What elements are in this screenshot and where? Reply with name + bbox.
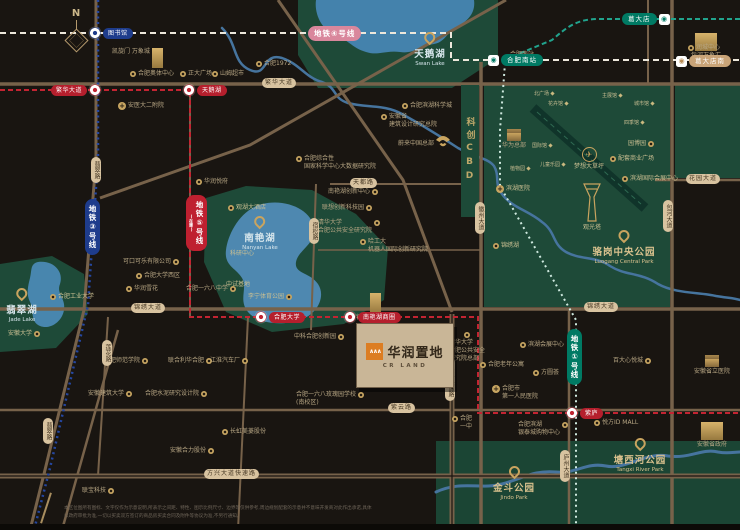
poi-dot-icon: [108, 488, 114, 494]
poi-label: 观湖大酒店: [228, 204, 266, 212]
poi-dot-icon: [142, 358, 148, 364]
poi-label-text: 滨湖会展中心: [528, 341, 564, 349]
hefei-location-map: 科创CBD ∧∧∧ 华润置地 CR LAND N 本区位图所有图标、文字仅作为示…: [0, 0, 740, 530]
area-name: 塘西河公园Tangxi River Park: [614, 436, 667, 473]
poi-dot-icon: [402, 103, 408, 109]
poi-label-text: 长虹美菱股份: [230, 428, 266, 436]
area-name: 金斗公园Jindo Park: [493, 464, 535, 501]
area-name-en: Tangxi River Park: [614, 467, 667, 474]
building-icon: [705, 355, 719, 367]
compass-n-label: N: [58, 8, 94, 19]
area-name-en: Jade Lake: [6, 317, 38, 324]
poi-label-text: 合肥1972: [264, 60, 291, 68]
poi-label: 联宝科技: [82, 487, 114, 495]
poi-label: 合肥一六八中学: [186, 285, 236, 293]
poi-label: 华润悦府: [196, 178, 228, 186]
poi-label: 华为总部: [502, 129, 526, 150]
poi-label: 安徽合力股份: [170, 447, 214, 455]
metro-station-name: 葛大店南: [689, 55, 731, 67]
area-name-en: Swan Lake: [414, 61, 446, 68]
poi-dot-icon: [180, 71, 186, 77]
poi-label: 合肥奥体中心: [130, 70, 174, 78]
poi-label-text: 锦绣湖: [501, 242, 519, 250]
project-row: ∧∧∧ 华润置地: [366, 342, 443, 361]
poi-label-text: 百大心悦城: [613, 357, 643, 365]
road-label: 宿松路: [309, 218, 319, 244]
metro-station: ◉葛大店南: [676, 55, 731, 67]
poi-label: 华润雪花: [126, 285, 158, 293]
cr-land-logo-icon: ∧∧∧: [366, 343, 383, 360]
building-icon: [369, 293, 380, 313]
poi-label-text: 清华大学合肥公共安全研究院: [318, 219, 372, 235]
poi-label-text: 正大广场: [188, 70, 212, 78]
poi-label-text: 滨湖医院: [506, 185, 530, 193]
poi-label: 合肥老年公寓: [480, 361, 524, 369]
poi-label: 合肥大学西区: [136, 272, 180, 280]
building-icon: [507, 129, 521, 141]
poi-label: 联想创新科技园: [322, 204, 372, 212]
metro-station-name: 葛大店: [622, 13, 657, 25]
park-feature-label: 主展馆: [602, 92, 622, 99]
poi-label-text: 合肥一中: [460, 415, 472, 431]
poi-dot-icon: [374, 220, 380, 226]
road-label: 方兴大道快速路: [204, 469, 259, 479]
poi-label: 江淮汽车厂: [210, 357, 248, 365]
metro-station-icon: [184, 85, 195, 96]
poi-label-text: 合肥市第一人民医院: [502, 385, 538, 401]
poi-label-text: 观光塔: [583, 224, 601, 232]
poi-dot-icon: [296, 156, 302, 162]
road-label: 庐州大道: [560, 450, 570, 482]
poi-label-text: 合肥滨湖银泰城购物中心: [518, 421, 560, 437]
bottom-border-bar: [0, 524, 740, 530]
poi-dot-icon: [230, 286, 236, 292]
road-label: 莲花路: [102, 340, 112, 366]
poi-dot-icon: [256, 61, 262, 67]
metro-station-icon: [256, 312, 267, 323]
poi-label: 正大广场: [180, 70, 212, 78]
metro-line-label: 地铁①号线: [567, 329, 582, 385]
park-feature-label: 北广场: [534, 90, 554, 97]
poi-label-text: 合肥大学西区: [144, 272, 180, 280]
poi-label: 南艳湖创新中心: [328, 188, 378, 196]
poi-label-text: 园博园: [628, 140, 646, 148]
poi-dot-icon: [50, 294, 56, 300]
feature-diamond-icon: [640, 120, 644, 124]
metro-station-icon: [90, 85, 101, 96]
poi-label-text: 联宝科技: [82, 487, 106, 495]
poi-label: 配套商业广场: [610, 155, 654, 163]
metro-station-icon: [345, 312, 356, 323]
metro-station-name: 合肥大学: [269, 312, 305, 323]
poi-label-text: 中科合肥创新园: [294, 333, 336, 341]
metro-station-icon: [567, 408, 578, 419]
poi-label-text: 蔚来中国总部: [398, 140, 434, 148]
poi-label-text: 配套商业广场: [618, 155, 654, 163]
poi-dot-icon: [358, 392, 364, 398]
poi-dot-icon: [212, 71, 218, 77]
poi-dot-icon: [366, 205, 372, 211]
poi-label-text: 观湖大酒店: [236, 204, 266, 212]
poi-dot-icon: [594, 420, 600, 426]
poi-label-text: 华润悦府: [204, 178, 228, 186]
poi-label-text: 科研中心: [230, 250, 254, 258]
metro-line-label: 地铁③号线: [85, 199, 100, 255]
map-pin-icon: [422, 30, 438, 46]
luogang-park-east: [675, 85, 740, 178]
park-feature-label: 城市馆: [634, 100, 654, 107]
poi-label: 科研中心: [230, 250, 254, 258]
metro-station-name: 图书馆: [103, 28, 133, 39]
poi-label-text: 合肥一六八玫瑰园学校(南校区): [296, 391, 356, 407]
poi-label: 山姆超市: [212, 70, 244, 78]
road-label: 锦绣大道: [131, 303, 165, 313]
metro-station: ◉合肥南站: [488, 54, 543, 66]
poi-label-text: 山姆超市: [220, 70, 244, 78]
poi-label: 凯旋门 万象城: [112, 48, 163, 68]
poi-dot-icon: [533, 370, 539, 376]
feature-diamond-icon: [526, 166, 530, 170]
poi-label: 安徽省建筑设计研究总院: [381, 113, 437, 129]
road-label: 包河大道: [663, 200, 673, 232]
poi-label-text: 润城中心: [696, 44, 720, 52]
poi-label-text: 合肥工业大学: [58, 293, 94, 301]
poi-dot-icon: [338, 334, 344, 340]
poi-label: 安徽省政府: [697, 422, 727, 449]
poi-label-text: 安医大二附院: [128, 102, 164, 110]
metro-station-icon: ◉: [659, 14, 670, 25]
park-feature-label: 儿童乐园: [540, 161, 565, 168]
poi-label-text: 联想创新科技园: [322, 204, 364, 212]
poi-dot-icon: [452, 416, 458, 422]
road-label: 锦绣大道: [584, 302, 618, 312]
map-pin-icon: [14, 286, 30, 302]
feature-diamond-icon: [561, 162, 565, 166]
poi-label: 悦方ID MALL: [594, 419, 638, 427]
poi-label: +安医大二附院: [118, 102, 164, 110]
poi-label: 锦绣湖: [493, 242, 519, 250]
poi-label: +滨湖医院: [496, 185, 530, 193]
poi-label: 联合利华合肥: [168, 357, 212, 365]
poi-label: ✈梦想大草坪: [574, 147, 604, 171]
poi-label: 合肥一六八玫瑰园学校(南校区): [296, 391, 364, 407]
poi-dot-icon: [201, 391, 207, 397]
poi-label: 蔚来中国总部: [398, 140, 434, 148]
road-label: 紫云路: [388, 403, 415, 413]
disclaimer-line-2: 以政府审批为准,一切以买卖双方签订的商品房买卖合同及附件等协议为准,不另行通知。: [64, 513, 384, 521]
park-feature-label: 四季馆: [624, 119, 644, 126]
poi-label-text: 安徽省政府: [697, 441, 727, 449]
poi-label-text: 华为总部: [502, 142, 526, 150]
disclaimer-line-1: 本区位图所有图标、文字仅作为示意说明,所表示之间距、特性、图示比例尺寸、边界等仅…: [64, 505, 384, 513]
poi-dot-icon: [372, 189, 378, 195]
poi-label: 可口可乐有限公司: [123, 258, 179, 266]
metro-line-label: 地铁④号线: [308, 26, 361, 41]
area-name-en: Jindo Park: [493, 495, 535, 502]
metro-station-icon: [90, 28, 101, 39]
poi-label: 合肥水泥研究设计院: [145, 390, 207, 398]
airplane-icon: ✈: [581, 147, 596, 162]
poi-label: 方圆荟: [533, 369, 559, 377]
map-pin-icon: [616, 228, 632, 244]
poi-label: 滨湖会展中心: [520, 341, 564, 349]
poi-dot-icon: [360, 239, 366, 245]
metro-station-icon: ◉: [488, 55, 499, 66]
poi-label-text: 南艳湖创新中心: [328, 188, 370, 196]
poi-dot-icon: [464, 332, 470, 338]
map-pin-icon: [252, 214, 268, 230]
metro-station: 葛大店◉: [622, 13, 670, 25]
project-name-en: CR LAND: [383, 363, 428, 369]
road-label: 翡翠路: [43, 418, 53, 444]
poi-dot-icon: [196, 179, 202, 185]
metro-line-sublabel: (在建): [188, 214, 194, 232]
area-name: 翡翠湖Jade Lake: [6, 286, 38, 323]
poi-label: 安徽建筑大学: [88, 390, 132, 398]
poi-dot-icon: [610, 156, 616, 162]
poi-dot-icon: [688, 45, 694, 51]
project-block: ∧∧∧ 华润置地 CR LAND: [356, 323, 454, 388]
park-feature-label: 国际馆: [532, 142, 552, 149]
poi-label: 中科合肥创新园: [294, 333, 344, 341]
poi-label-text: 安徽合力股份: [170, 447, 206, 455]
poi-label-text: 合肥综合性国家科学中心大数据研究院: [304, 155, 376, 171]
poi-label: 长虹美菱股份: [222, 428, 266, 436]
poi-dot-icon: [208, 448, 214, 454]
poi-dot-icon: [126, 391, 132, 397]
poi-label: 合肥1972: [256, 60, 291, 68]
poi-label: 合肥滨湖科学城: [402, 102, 452, 110]
hospital-cross-icon: +: [496, 185, 504, 193]
poi-label: 清华大学合肥公共安全研究院总部: [449, 331, 485, 362]
poi-label: 合肥一中: [452, 415, 472, 431]
park-feature-label: 花卉馆: [548, 100, 568, 107]
metro-station-name: 天鹅湖: [197, 85, 227, 96]
poi-label: 合肥滨湖银泰城购物中心: [518, 421, 568, 437]
poi-label-text: 哈工大机器人国际创新研究院: [368, 238, 428, 254]
area-name-cn: 天鹅湖: [414, 49, 446, 60]
area-name: 天鹅湖Swan Lake: [414, 30, 446, 67]
road-label: 花园大道: [686, 174, 720, 184]
poi-label-text: 凯旋门 万象城: [112, 48, 150, 56]
kechuang-cbd-banner: 科创CBD: [461, 85, 479, 217]
map-pin-icon: [506, 464, 522, 480]
metro-station-name: 南艳湖商圈: [358, 312, 401, 323]
road-label: 天都路: [350, 178, 377, 188]
area-name: 骆岗中央公园Luogang Central Park: [592, 228, 655, 265]
building-icon: [509, 39, 535, 50]
poi-label: 清华大学合肥公共安全研究院: [318, 219, 380, 235]
poi-label-text: 方圆荟: [541, 369, 559, 377]
poi-label: 滨湖国际会展中心: [622, 175, 678, 183]
poi-dot-icon: [126, 286, 132, 292]
poi-dot-icon: [648, 141, 654, 147]
poi-label-text: 李宁体育公园: [248, 293, 284, 301]
feature-diamond-icon: [650, 101, 654, 105]
park-feature-label: 植物园: [510, 165, 530, 172]
poi-dot-icon: [645, 358, 651, 364]
building-icon: [701, 422, 723, 440]
area-name-cn: 骆岗中央公园: [592, 247, 655, 258]
poi-dot-icon: [130, 71, 136, 77]
area-name: 南艳湖Nanyan Lake: [242, 214, 278, 251]
poi-dot-icon: [520, 342, 526, 348]
poi-dot-icon: [480, 362, 486, 368]
building-icon: [152, 48, 163, 68]
poi-label-text: 安徽省建筑设计研究总院: [389, 113, 437, 129]
poi-dot-icon: [562, 422, 568, 428]
poi-dot-icon: [493, 243, 499, 249]
area-name-en: Luogang Central Park: [592, 259, 655, 266]
poi-dot-icon: [622, 176, 628, 182]
poi-label: +合肥市第一人民医院: [492, 385, 538, 401]
road-label: 翡翠路: [91, 157, 101, 183]
poi-label-text: 合肥一六八中学: [186, 285, 228, 293]
poi-label-text: 可口可乐有限公司: [123, 258, 171, 266]
poi-label-text: 合肥奥体中心: [138, 70, 174, 78]
poi-dot-icon: [34, 331, 40, 337]
hospital-cross-icon: +: [492, 385, 500, 393]
poi-label-text: 合肥老年公寓: [488, 361, 524, 369]
area-name-cn: 塘西河公园: [614, 455, 667, 466]
poi-dot-icon: [381, 114, 387, 120]
feature-diamond-icon: [618, 93, 622, 97]
poi-label: 安徽大学: [8, 330, 40, 338]
poi-label-text: 梦想大草坪: [574, 163, 604, 171]
map-pin-icon: [632, 436, 648, 452]
poi-label: 观光塔: [583, 224, 601, 232]
feature-diamond-icon: [548, 143, 552, 147]
poi-dot-icon: [136, 273, 142, 279]
compass-diamond-icon: [64, 28, 88, 52]
feature-diamond-icon: [564, 101, 568, 105]
poi-label-text: 华润雪花: [134, 285, 158, 293]
poi-dot-icon: [222, 429, 228, 435]
poi-label: 合肥综合性国家科学中心大数据研究院: [296, 155, 376, 171]
metro-station-name: 紫庐: [580, 408, 603, 419]
metro-station-name: 繁华大道: [51, 85, 87, 96]
poi-label-text: 合肥滨湖科学城: [410, 102, 452, 110]
poi-label-text: 安徽建筑大学: [88, 390, 124, 398]
poi-label: 安徽省立医院: [694, 355, 730, 376]
compass: N: [58, 8, 94, 51]
feature-diamond-icon: [550, 91, 554, 95]
poi-label-text: 江淮汽车厂: [210, 357, 240, 365]
poi-dot-icon: [286, 294, 292, 300]
poi-label-text: 滨湖国际会展中心: [630, 175, 678, 183]
disclaimer: 本区位图所有图标、文字仅作为示意说明,所表示之间距、特性、图示比例尺寸、边界等仅…: [64, 505, 384, 522]
area-name-cn: 翡翠湖: [6, 305, 38, 316]
poi-dot-icon: [173, 259, 179, 265]
metro-station-icon: ◉: [676, 56, 687, 67]
road-label: 繁华大道: [262, 78, 296, 88]
road-label: 徽州大道: [475, 202, 485, 234]
poi-label: 哈工大机器人国际创新研究院: [360, 238, 428, 254]
metro-station-name: 合肥南站: [501, 54, 543, 66]
poi-label: 李宁体育公园: [248, 293, 292, 301]
area-name-cn: 南艳湖: [242, 233, 278, 244]
poi-label-text: 合肥水泥研究设计院: [145, 390, 199, 398]
metro-line-label: 地铁⑤号线(在建): [186, 195, 207, 251]
poi-label-text: 安徽省立医院: [694, 368, 730, 376]
poi-label-text: 悦方ID MALL: [602, 419, 638, 427]
hospital-cross-icon: +: [118, 102, 126, 110]
poi-dot-icon: [242, 358, 248, 364]
project-name: 华润置地: [387, 342, 443, 361]
poi-dot-icon: [228, 205, 234, 211]
poi-label: 合肥工业大学: [50, 293, 94, 301]
poi-label-text: 联合利华合肥: [168, 357, 204, 365]
area-name-cn: 金斗公园: [493, 483, 535, 494]
poi-label: 润城中心: [688, 44, 720, 52]
poi-label: 百大心悦城: [613, 357, 651, 365]
poi-label-text: 安徽大学: [8, 330, 32, 338]
poi-label: 园博园: [628, 140, 654, 148]
